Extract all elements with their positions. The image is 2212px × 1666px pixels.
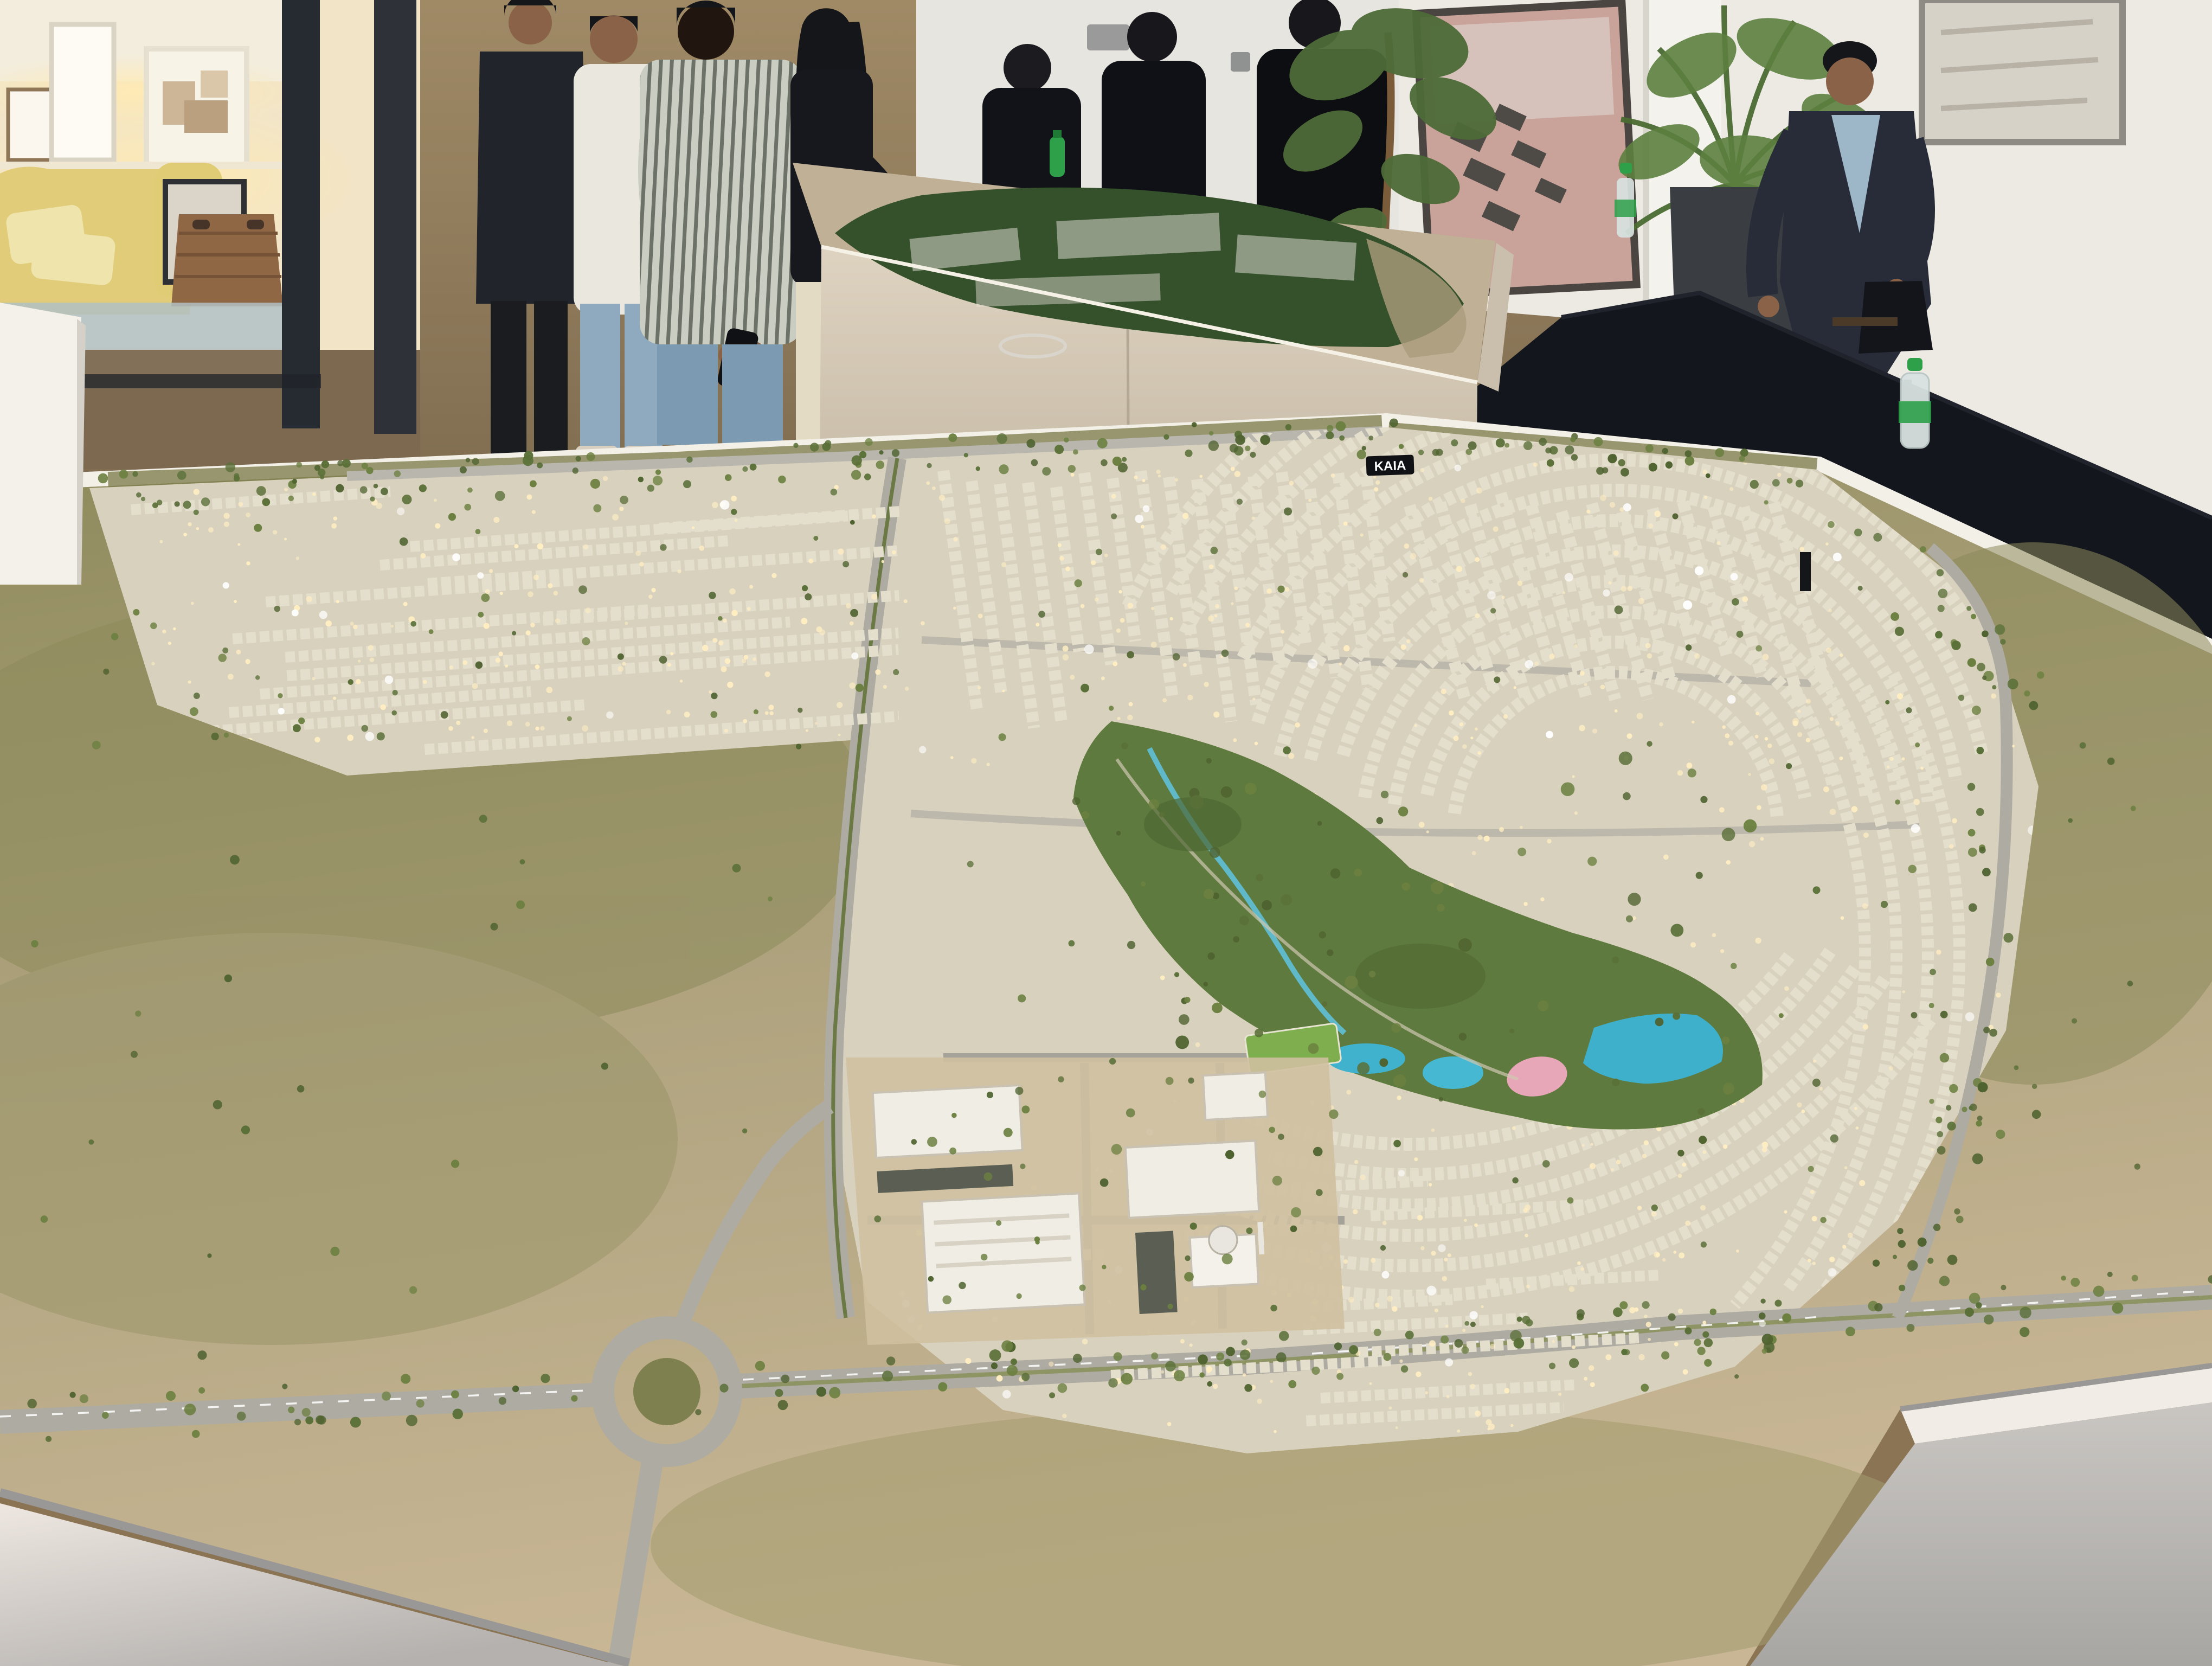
utility-building: [922, 1194, 1084, 1313]
belt: [1832, 317, 1898, 326]
main-model-table: KAIA: [0, 303, 2212, 1666]
school-building-1: [873, 1085, 1023, 1158]
glass-mullion-1: [282, 0, 320, 428]
kaia-label: KAIA: [1374, 458, 1406, 474]
model-billboard: [1800, 552, 1811, 591]
person-striped-shirt: [640, 1, 802, 445]
parking-row-2: [1135, 1231, 1178, 1314]
wall-logo-1: [1087, 24, 1129, 50]
scene: KAIA: [0, 0, 2212, 1666]
facilities-zone: [846, 1058, 1345, 1345]
roundabout-island: [633, 1358, 700, 1425]
photograph-stage: KAIA: [0, 0, 2212, 1666]
glass-mullion-2: [374, 0, 416, 434]
model-sign-kaia: KAIA: [1366, 454, 1414, 476]
green-bottle-held: [1050, 137, 1065, 177]
facility-small: [1203, 1072, 1268, 1120]
white-pedestal-left: [0, 303, 86, 585]
school-building-2: [1126, 1140, 1259, 1218]
mosque-dome: [1208, 1225, 1238, 1255]
wall-logo-2: [1231, 52, 1250, 72]
